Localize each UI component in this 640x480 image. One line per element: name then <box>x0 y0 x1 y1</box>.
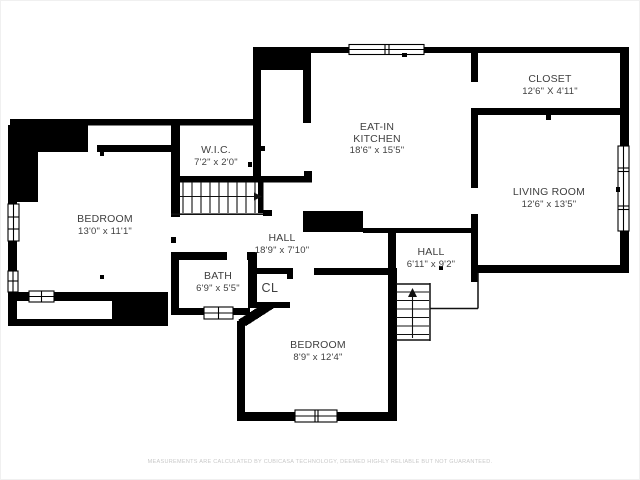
room-label-living-room: LIVING ROOM 12'6" x 13'5" <box>513 187 585 210</box>
room-dims: 8'9" x 12'4" <box>290 352 346 364</box>
window-bedroom-left-bottom <box>29 291 54 302</box>
stairs-upper <box>171 182 263 214</box>
disclaimer-text: MEASUREMENTS ARE CALCULATED BY CUBICASA … <box>0 459 640 465</box>
room-dims: 18'6" x 15'5" <box>350 145 405 157</box>
window-bedroom-left-upper <box>8 204 19 241</box>
room-dims: 6'11" x 9'2" <box>407 259 456 271</box>
room-name: EAT-IN <box>350 122 405 134</box>
room-name: HALL <box>407 247 456 259</box>
room-label-eat-in-kitchen: EAT-IN KITCHEN 18'6" x 15'5" <box>350 122 405 157</box>
room-name: KITCHEN <box>350 134 405 146</box>
room-dims: 13'0" x 11'1" <box>77 226 133 238</box>
window-bath <box>204 307 233 319</box>
room-label-hall-main: HALL 18'9" x 7'10" <box>255 233 310 256</box>
room-dims: 7'2" x 2'0" <box>194 157 238 169</box>
room-name: W.I.C. <box>194 145 238 157</box>
room-label-bedroom-bottom: BEDROOM 8'9" x 12'4" <box>290 340 346 363</box>
floorplan-canvas: EAT-IN KITCHEN 18'6" x 15'5" CLOSET 12'6… <box>0 0 640 480</box>
room-dims: 6'9" x 5'5" <box>196 283 240 295</box>
room-label-bedroom-left: BEDROOM 13'0" x 11'1" <box>77 214 133 237</box>
room-dims: 18'9" x 7'10" <box>255 245 310 257</box>
room-label-bath: BATH 6'9" x 5'5" <box>196 271 240 294</box>
window-kitchen-top <box>349 45 424 55</box>
room-dims: 12'6" X 4'11" <box>522 86 578 98</box>
room-label-hall-right: HALL 6'11" x 9'2" <box>407 247 456 270</box>
room-label-cl: CL <box>262 283 279 295</box>
window-bedroom-left-lower <box>8 271 18 292</box>
room-name: HALL <box>255 233 310 245</box>
room-label-closet: CLOSET 12'6" X 4'11" <box>522 74 578 97</box>
room-name: BEDROOM <box>77 214 133 226</box>
room-label-wic: W.I.C. 7'2" x 2'0" <box>194 145 238 168</box>
room-name: BEDROOM <box>290 340 346 352</box>
stairs-lower <box>396 273 478 341</box>
room-name: LIVING ROOM <box>513 187 585 199</box>
window-bedroom-bottom <box>295 410 337 422</box>
room-name: CLOSET <box>522 74 578 86</box>
floorplan-drawing <box>0 0 640 480</box>
room-name: CL <box>262 283 279 295</box>
room-dims: 12'6" x 13'5" <box>513 199 585 211</box>
room-name: BATH <box>196 271 240 283</box>
